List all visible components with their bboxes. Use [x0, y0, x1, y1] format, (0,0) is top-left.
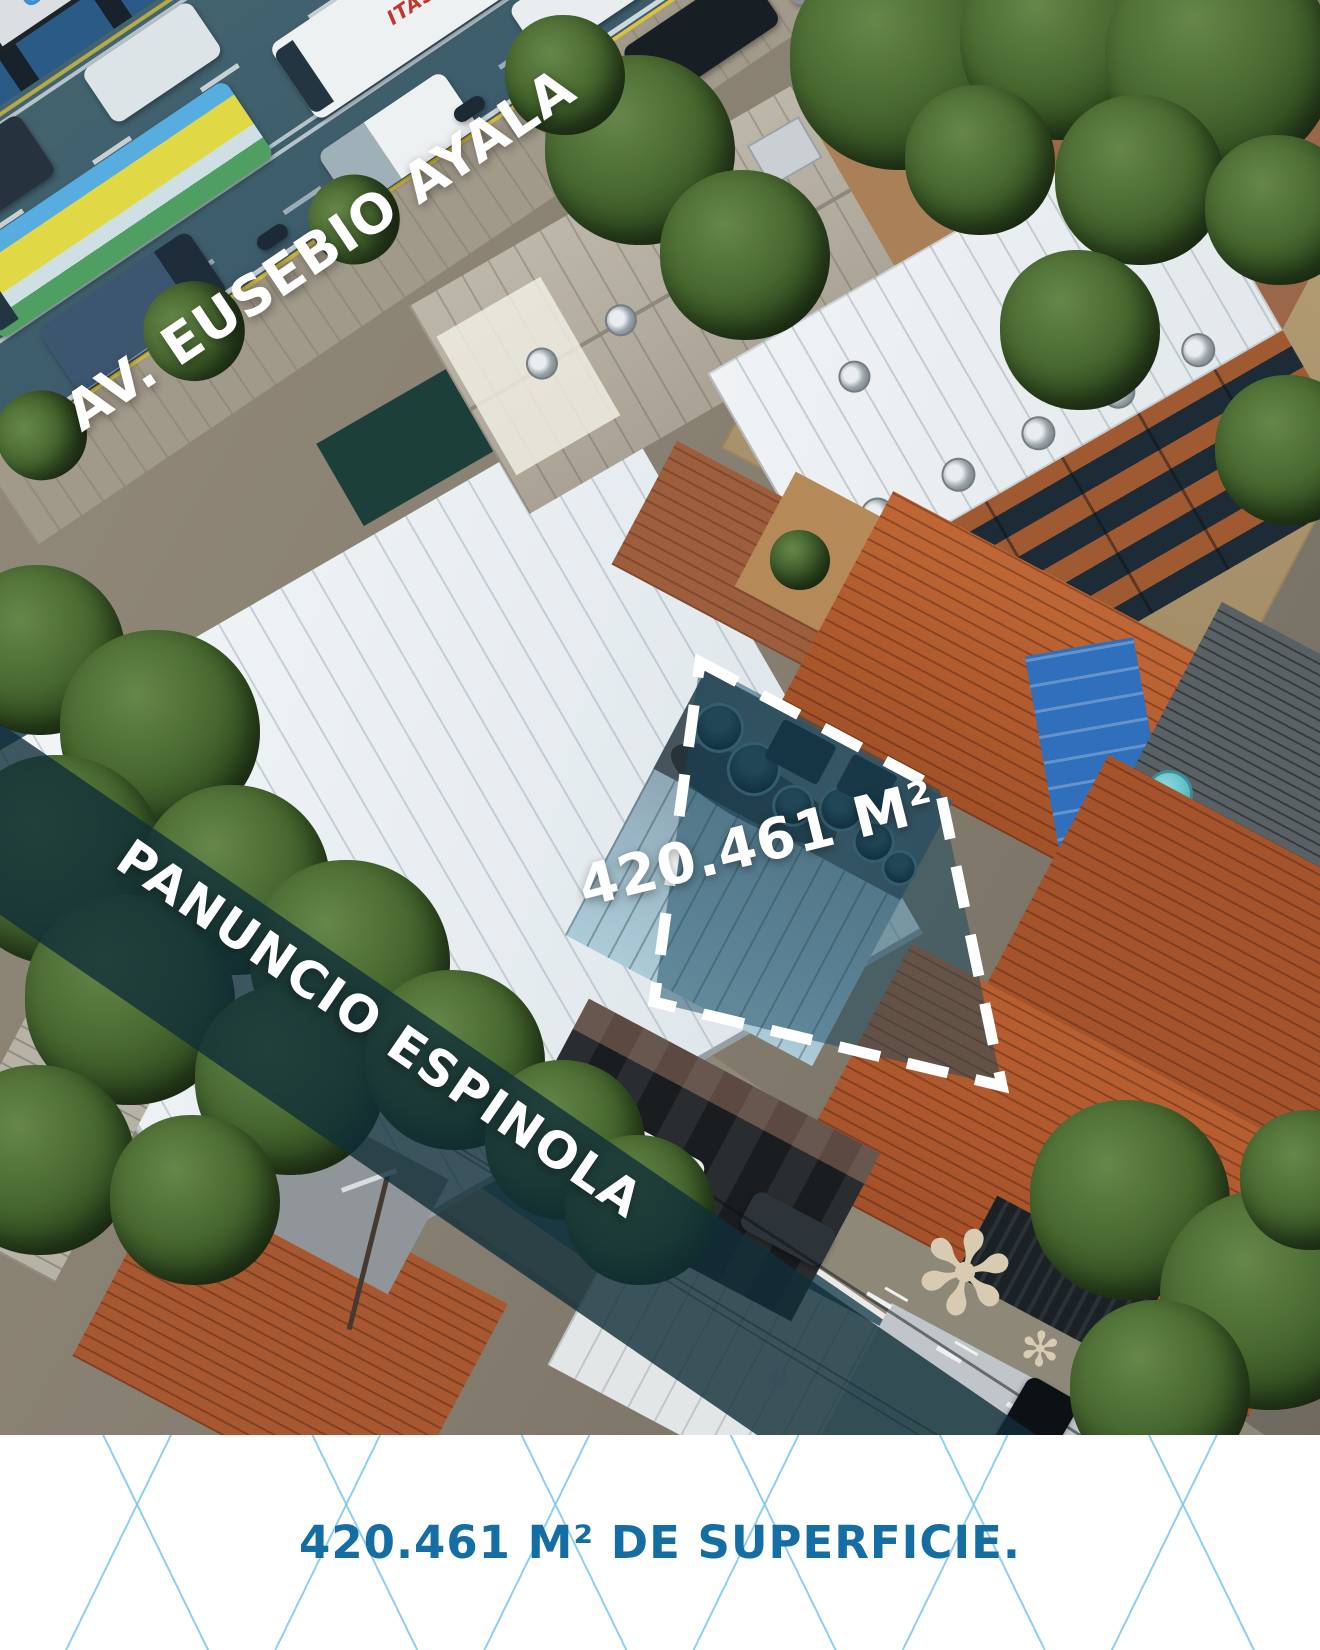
- aerial-photo: cmyk ITASA: [0, 0, 1320, 1435]
- caption-text: 420.461 M² DE SUPERFICIE.: [299, 1516, 1021, 1569]
- listing-graphic: cmyk ITASA: [0, 0, 1320, 1650]
- parcel-overlay-svg: [0, 0, 1320, 1435]
- caption-band: 420.461 M² DE SUPERFICIE.: [0, 1435, 1320, 1650]
